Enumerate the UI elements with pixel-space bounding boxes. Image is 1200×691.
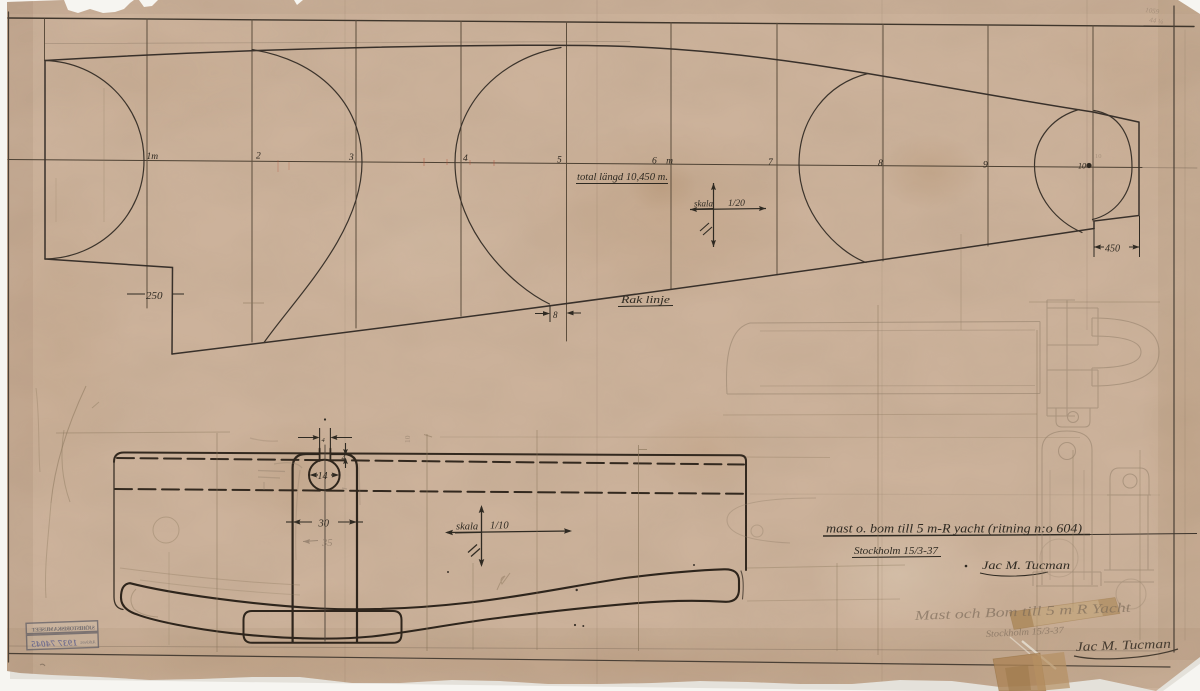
svg-text:8: 8 (553, 310, 558, 320)
svg-text:6 m: 6 m (652, 157, 673, 167)
svg-text:Rak linje: Rak linje (620, 295, 671, 306)
svg-text:4: 4 (463, 154, 468, 164)
svg-text:30: 30 (318, 519, 330, 530)
svg-text:Stockholm 15/3-37: Stockholm 15/3-37 (854, 546, 939, 557)
svg-text:14: 14 (318, 471, 328, 482)
svg-text:2: 2 (256, 152, 261, 162)
svg-text:10: 10 (1095, 153, 1102, 160)
svg-text:10: 10 (403, 435, 412, 443)
svg-text:10: 10 (1078, 162, 1086, 171)
svg-text:Jac M. Tucman: Jac M. Tucman (982, 558, 1070, 572)
svg-text:1/20: 1/20 (728, 199, 745, 209)
svg-text:250: 250 (146, 290, 163, 302)
svg-text:3: 3 (348, 153, 354, 163)
svg-text:4: 4 (342, 454, 346, 463)
svg-text:skala: skala (456, 522, 478, 533)
svg-text:1m: 1m (147, 152, 159, 162)
svg-text:1937 74045: 1937 74045 (31, 638, 78, 650)
svg-text:5: 5 (557, 156, 562, 166)
svg-text:450: 450 (1105, 244, 1120, 255)
svg-text:8: 8 (878, 159, 883, 169)
svg-text:total längd 10,450 m.: total längd 10,450 m. (577, 172, 668, 183)
svg-text:1/10: 1/10 (490, 521, 509, 532)
svg-text:35: 35 (321, 538, 333, 549)
svg-text:Arkivet:: Arkivet: (80, 640, 96, 646)
svg-text:skala: skala (694, 199, 713, 209)
svg-text:mast o. bom till 5 m-R yacht (: mast o. bom till 5 m-R yacht (ritning n:… (826, 521, 1082, 536)
svg-text:9: 9 (983, 161, 988, 171)
